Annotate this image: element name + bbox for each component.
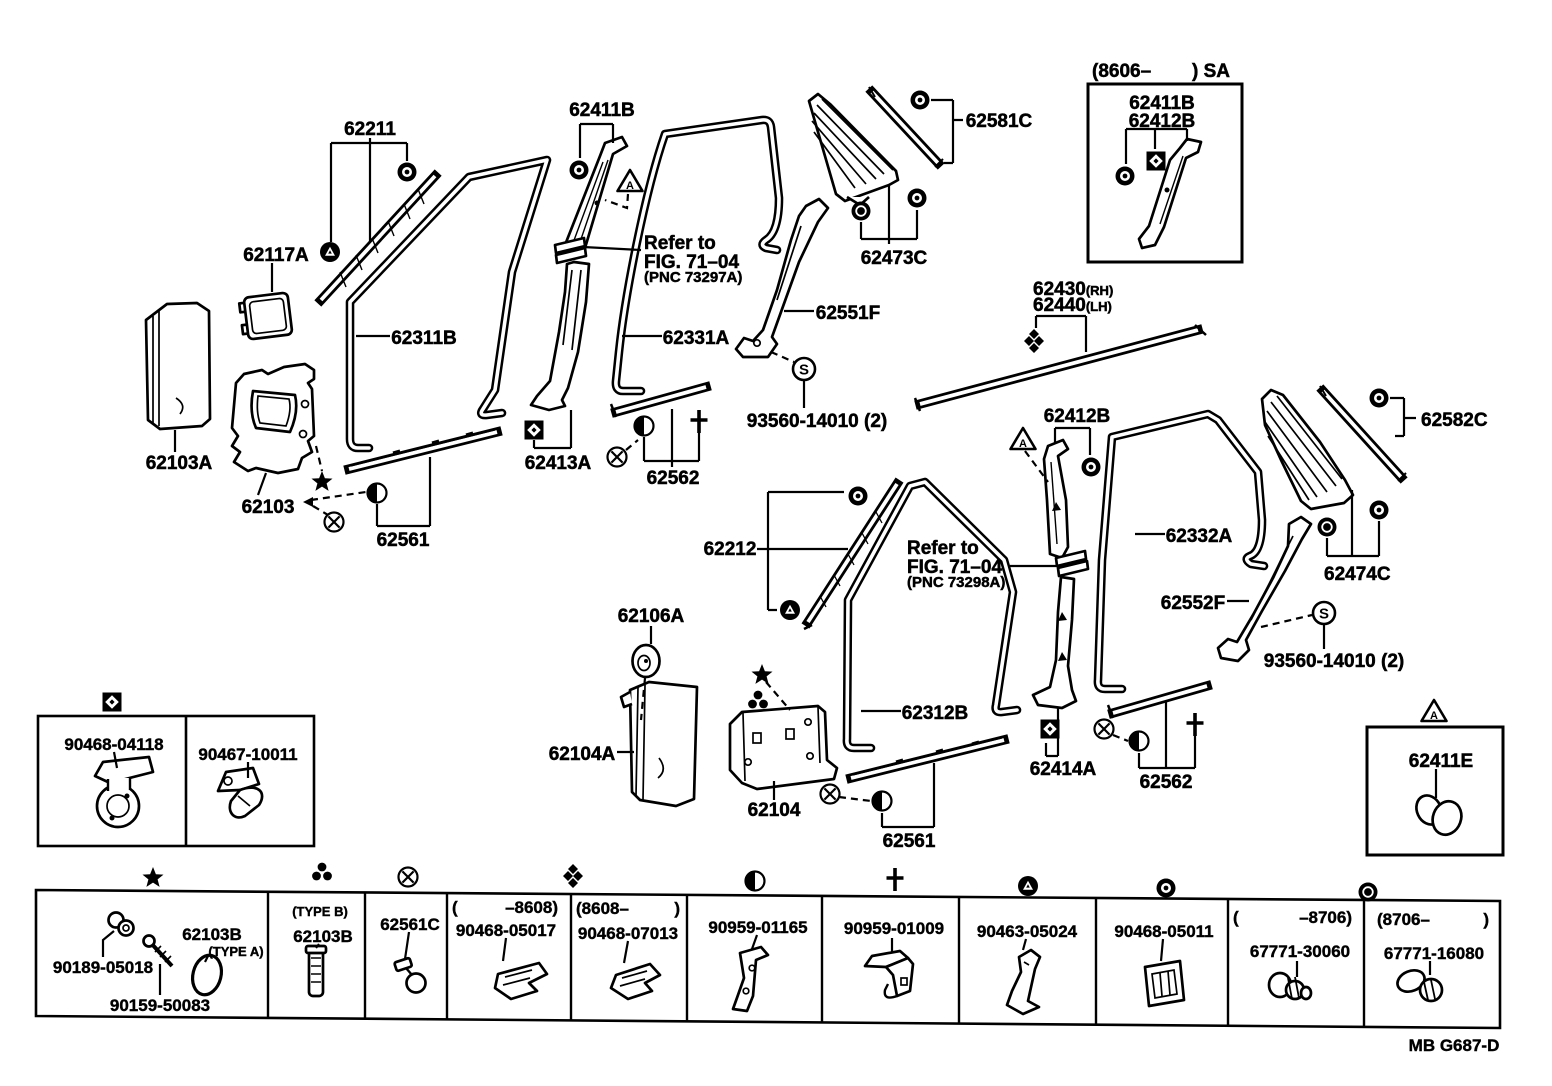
svg-text:62551F: 62551F xyxy=(816,303,880,324)
svg-text:62412B: 62412B xyxy=(1129,111,1196,132)
svg-text:Refer to: Refer to xyxy=(907,538,979,559)
svg-text:(8608–: (8608– xyxy=(576,899,629,918)
svg-text:62104A: 62104A xyxy=(549,744,616,765)
svg-text:62103A: 62103A xyxy=(146,453,213,474)
svg-text:62212: 62212 xyxy=(704,539,757,560)
svg-text:) SA: ) SA xyxy=(1192,61,1230,82)
svg-text:62562: 62562 xyxy=(1140,772,1193,793)
svg-text:62412B: 62412B xyxy=(1044,406,1111,427)
svg-text:62332A: 62332A xyxy=(1166,526,1233,547)
svg-text:): ) xyxy=(674,899,680,918)
svg-text:62103B: 62103B xyxy=(182,925,242,944)
svg-text:67771-30060: 67771-30060 xyxy=(1250,942,1350,961)
svg-text:(PNC 73297A): (PNC 73297A) xyxy=(644,269,742,286)
svg-text:62561C: 62561C xyxy=(380,915,440,934)
svg-text:67771-16080: 67771-16080 xyxy=(1384,944,1484,963)
svg-text:90959-01009: 90959-01009 xyxy=(844,919,944,938)
svg-text:Refer to: Refer to xyxy=(644,233,716,254)
svg-text:62440(LH): 62440(LH) xyxy=(1033,295,1112,316)
svg-text:62581C: 62581C xyxy=(966,111,1033,132)
svg-text:(8606–: (8606– xyxy=(1092,61,1151,82)
svg-text:MB G687-D: MB G687-D xyxy=(1409,1036,1500,1055)
svg-text:62331A: 62331A xyxy=(663,328,730,349)
svg-text:(TYPE B): (TYPE B) xyxy=(292,904,348,919)
svg-text:90468-07013: 90468-07013 xyxy=(578,924,678,943)
svg-text:90463-05024: 90463-05024 xyxy=(977,922,1078,941)
svg-text:62117A: 62117A xyxy=(243,245,309,266)
svg-text:(: ( xyxy=(1233,908,1239,927)
svg-text:90468-05011: 90468-05011 xyxy=(1114,922,1213,941)
svg-text:90468-05017: 90468-05017 xyxy=(456,921,556,940)
svg-text:62103: 62103 xyxy=(242,497,295,518)
svg-text:(: ( xyxy=(452,898,458,917)
svg-text:62104: 62104 xyxy=(748,800,801,821)
svg-text:–8706): –8706) xyxy=(1299,908,1352,927)
svg-text:62473C: 62473C xyxy=(861,248,928,269)
svg-text:62561: 62561 xyxy=(377,530,430,551)
svg-text:62411B: 62411B xyxy=(569,100,635,121)
svg-text:62106A: 62106A xyxy=(618,606,685,627)
svg-text:90189-05018: 90189-05018 xyxy=(53,958,153,977)
svg-text:): ) xyxy=(1483,910,1489,929)
svg-text:62211: 62211 xyxy=(344,119,396,140)
svg-text:90959-01165: 90959-01165 xyxy=(708,918,807,937)
svg-text:90468-04118: 90468-04118 xyxy=(64,735,163,754)
svg-text:–8608): –8608) xyxy=(505,898,558,917)
svg-text:93560-14010 (2): 93560-14010 (2) xyxy=(747,411,888,432)
svg-text:90159-50083: 90159-50083 xyxy=(110,996,210,1015)
svg-text:62552F: 62552F xyxy=(1161,593,1225,614)
svg-text:62474C: 62474C xyxy=(1324,564,1391,585)
svg-text:62582C: 62582C xyxy=(1421,410,1488,431)
svg-text:62413A: 62413A xyxy=(525,453,592,474)
svg-text:62311B: 62311B xyxy=(391,328,457,349)
svg-text:62562: 62562 xyxy=(647,468,700,489)
svg-text:62414A: 62414A xyxy=(1030,759,1097,780)
svg-text:93560-14010 (2): 93560-14010 (2) xyxy=(1264,651,1405,672)
svg-text:62561: 62561 xyxy=(883,831,936,852)
svg-text:(TYPE A): (TYPE A) xyxy=(208,944,263,959)
svg-text:90467-10011: 90467-10011 xyxy=(198,745,297,764)
svg-text:62411E: 62411E xyxy=(1409,751,1473,772)
svg-text:62312B: 62312B xyxy=(902,703,969,724)
svg-text:62103B: 62103B xyxy=(293,927,353,946)
svg-text:(PNC 73298A): (PNC 73298A) xyxy=(907,574,1005,591)
svg-text:(8706–: (8706– xyxy=(1377,910,1430,929)
